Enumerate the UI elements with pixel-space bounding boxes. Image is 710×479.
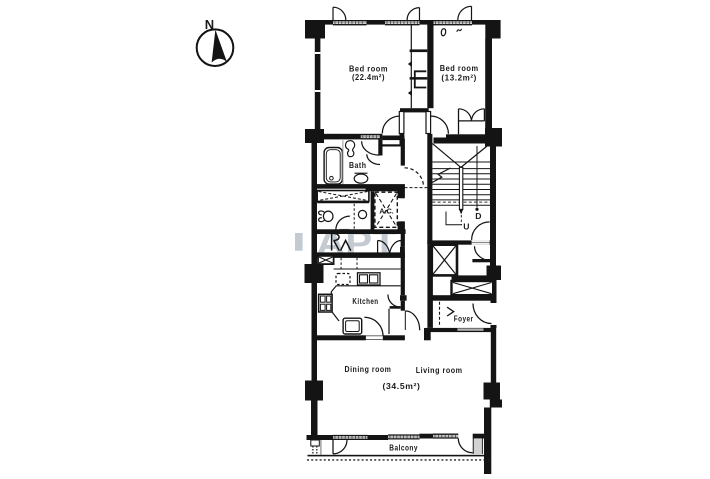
svg-text:U: U [463, 221, 469, 231]
svg-text:Foyer: Foyer [454, 314, 474, 323]
svg-text:N: N [205, 17, 214, 32]
svg-text:D: D [475, 211, 481, 221]
svg-text:Dining room: Dining room [345, 365, 392, 374]
svg-text:(34.5m²): (34.5m²) [383, 382, 421, 391]
svg-text:Kitchen: Kitchen [352, 297, 378, 306]
svg-text:Bed room: Bed room [440, 64, 479, 73]
svg-text:(13.2m²): (13.2m²) [441, 73, 477, 82]
svg-text:(22.4m²): (22.4m²) [352, 73, 385, 82]
svg-text:A.C.: A.C. [379, 207, 393, 216]
svg-text:Bath: Bath [349, 161, 367, 170]
svg-text:Living room: Living room [416, 366, 463, 375]
svg-text:Balcony: Balcony [389, 444, 418, 453]
